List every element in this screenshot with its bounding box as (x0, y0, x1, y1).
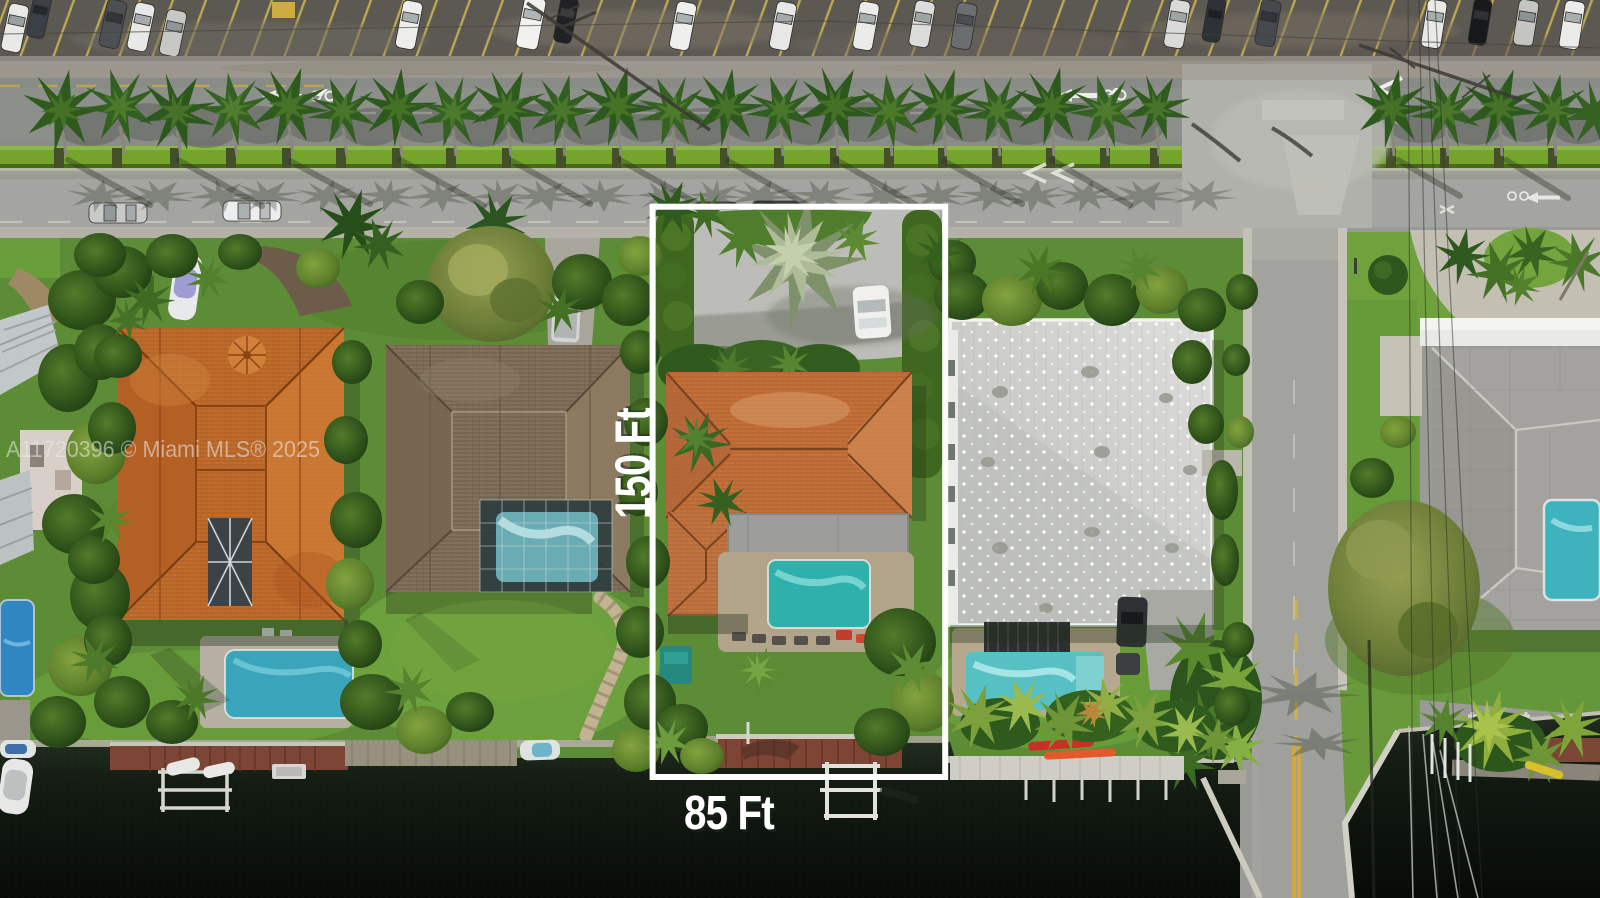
svg-text:A11720396 © Miami MLS® 2025: A11720396 © Miami MLS® 2025 (6, 436, 320, 462)
svg-text:85 Ft: 85 Ft (684, 787, 775, 840)
